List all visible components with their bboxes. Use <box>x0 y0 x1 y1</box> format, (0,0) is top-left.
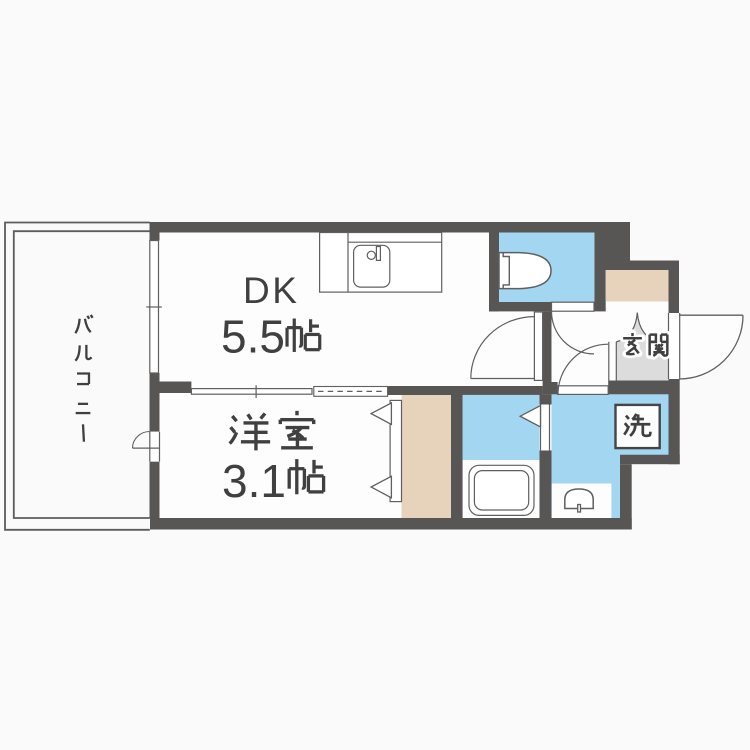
svg-text:DK: DK <box>243 270 299 311</box>
svg-text:3.1: 3.1 <box>222 455 286 507</box>
svg-text:5.5: 5.5 <box>221 311 285 363</box>
